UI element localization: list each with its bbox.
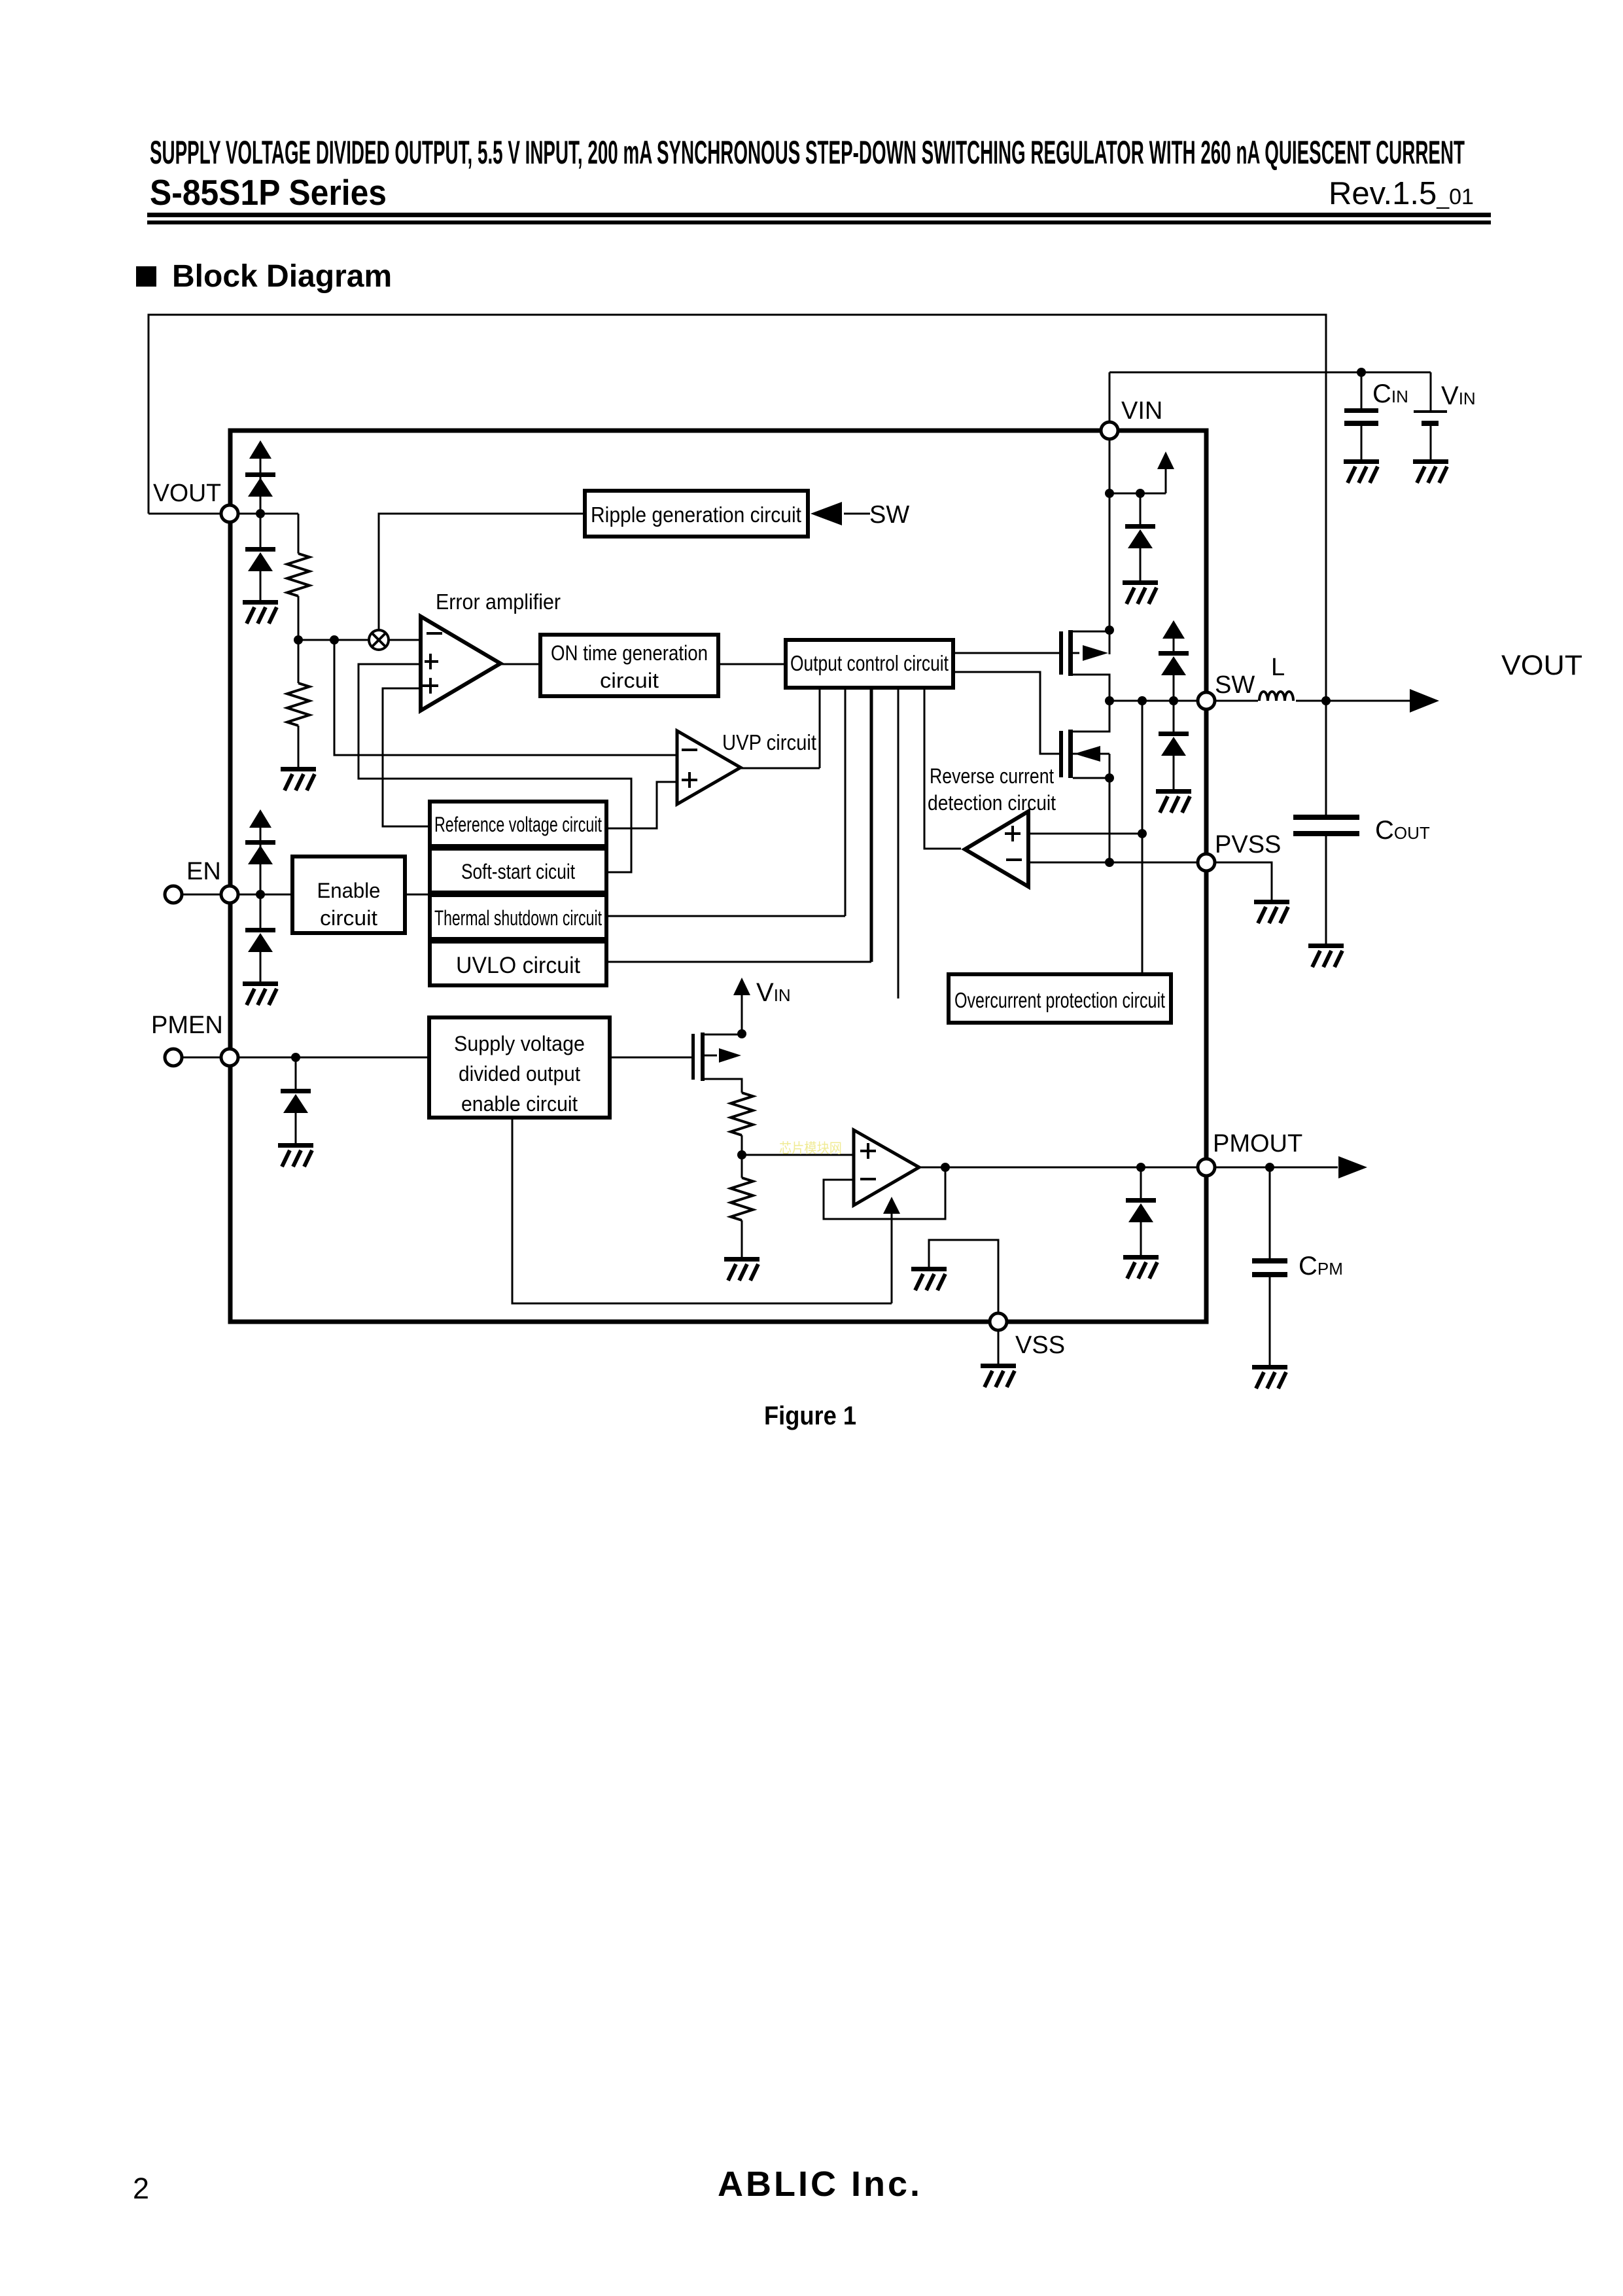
svg-text:circuit: circuit [320, 906, 377, 930]
svg-text:PMEN: PMEN [151, 1012, 223, 1039]
svg-text:SUPPLY VOLTAGE DIVIDED OUTPUT,: SUPPLY VOLTAGE DIVIDED OUTPUT, 5.5 V INP… [150, 134, 1465, 171]
svg-text:UVLO circuit: UVLO circuit [456, 953, 580, 978]
svg-text:PVSS: PVSS [1215, 831, 1281, 858]
svg-text:EN: EN [186, 858, 221, 885]
svg-text:Figure 1: Figure 1 [764, 1402, 856, 1430]
svg-text:divided output: divided output [459, 1062, 580, 1086]
svg-text:enable circuit: enable circuit [461, 1092, 578, 1116]
svg-text:ON time generation: ON time generation [551, 641, 708, 665]
svg-text:Error amplifier: Error amplifier [436, 590, 561, 614]
svg-text:芯片模块网: 芯片模块网 [779, 1141, 842, 1156]
svg-text:Ripple generation circuit: Ripple generation circuit [591, 503, 801, 527]
svg-text:Supply voltage: Supply voltage [454, 1032, 585, 1055]
svg-text:ABLIC Inc.: ABLIC Inc. [718, 2164, 922, 2204]
svg-text:VOUT: VOUT [1501, 650, 1582, 681]
svg-text:VSS: VSS [1015, 1332, 1065, 1359]
svg-text:VIN: VIN [1121, 397, 1162, 425]
svg-text:SW: SW [869, 501, 909, 529]
svg-text:UVP circuit: UVP circuit [722, 730, 816, 754]
svg-text:S-85S1P Series: S-85S1P Series [150, 172, 387, 213]
svg-text:Thermal shutdown circuit: Thermal shutdown circuit [434, 906, 602, 930]
svg-text:detection circuit: detection circuit [928, 791, 1056, 815]
svg-text:Soft-start cicuit: Soft-start cicuit [461, 860, 575, 883]
svg-text:Reverse current: Reverse current [930, 764, 1054, 788]
svg-text:circuit: circuit [600, 669, 659, 692]
svg-text:PMOUT: PMOUT [1213, 1130, 1302, 1157]
svg-text:Output control circuit: Output control circuit [790, 651, 949, 675]
svg-text:VOUT: VOUT [153, 480, 221, 507]
svg-text:Block Diagram: Block Diagram [172, 259, 392, 294]
svg-text:L: L [1271, 654, 1285, 681]
svg-text:Overcurrent protection circuit: Overcurrent protection circuit [954, 988, 1165, 1012]
svg-text:Reference voltage circuit: Reference voltage circuit [434, 813, 602, 836]
svg-text:SW: SW [1215, 671, 1255, 699]
svg-text:2: 2 [133, 2172, 149, 2205]
svg-text:Enable: Enable [317, 879, 381, 902]
